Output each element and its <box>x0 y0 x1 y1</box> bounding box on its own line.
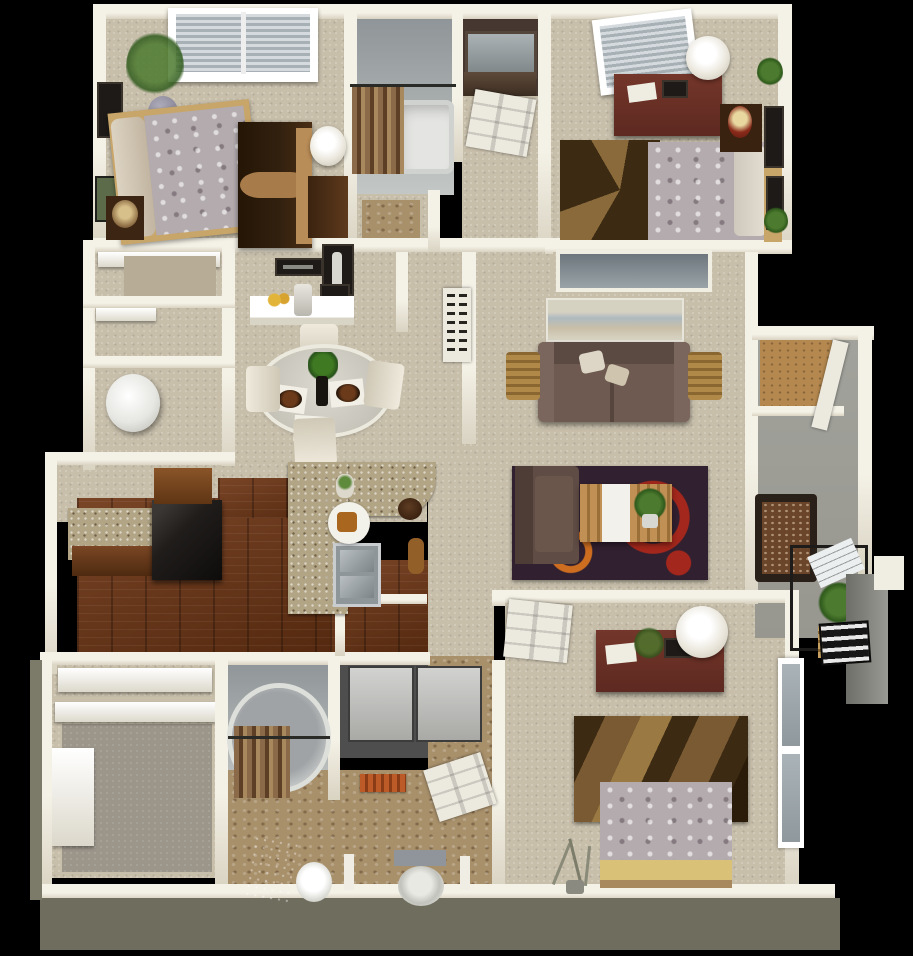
bedroom3-door <box>503 599 573 663</box>
wall-kitchen-bottom <box>45 652 430 665</box>
bedroom3-bed <box>600 782 732 864</box>
kitchen-plate-food <box>337 512 357 532</box>
bedroom3-window-pane-2 <box>782 754 800 842</box>
kitchen-canister <box>336 474 354 498</box>
bedroom1-window-mullion <box>241 12 246 74</box>
bedroom1-floor-lamp <box>310 126 346 166</box>
kitchen-sink-basin-1 <box>340 550 374 572</box>
kitchen-cabinet-upper <box>154 468 212 504</box>
kitchen-sink-basin-2 <box>340 576 374 598</box>
wall-closets-bottom <box>45 452 235 465</box>
pantry-louver-slats-right <box>459 294 467 356</box>
wall-balcony-right <box>858 326 872 574</box>
dining-chair-left <box>246 366 280 412</box>
bedroom1-basket-lamp <box>112 200 138 228</box>
walkin-shelf-top <box>55 702 215 722</box>
pantry-louver-door <box>443 288 471 362</box>
bedroom2-wall-art-1 <box>764 106 784 168</box>
wall-closets-left <box>83 240 95 470</box>
bedroom2-bed-pillows <box>734 146 766 236</box>
bedroom2-photo-frame <box>662 80 688 98</box>
bathroom2-pillar-2 <box>460 856 470 890</box>
wall-vanity-bed2 <box>538 4 551 252</box>
balcony-stairs <box>819 620 872 665</box>
wall-closet2-div <box>83 356 235 368</box>
balcony-stair-cap <box>874 556 904 590</box>
pantry-louver-slats-left <box>447 294 455 356</box>
bedroom1-plant <box>126 30 184 104</box>
living-sofa-arm-left <box>538 342 554 422</box>
bathroom2-pillar-1 <box>344 854 354 890</box>
closet1-runner <box>124 256 216 296</box>
dining-art-bottle <box>332 252 342 286</box>
bathroom2-sink <box>398 866 444 906</box>
living-alcove-window <box>560 254 708 288</box>
kitchen-fridge <box>152 500 222 580</box>
wall-bed3-left-a <box>492 590 505 606</box>
living-sofa <box>538 342 690 422</box>
bedroom3-window <box>778 658 804 848</box>
bedroom2-rug <box>560 140 660 240</box>
living-plant-pot <box>642 514 658 528</box>
wardrobe-door-2 <box>418 668 480 740</box>
bedroom3-plant-pot <box>566 880 584 894</box>
bedroom3-dresser-papers <box>605 642 637 664</box>
bathroom2-towel <box>360 774 406 792</box>
dining-console-vase <box>294 284 312 316</box>
bathroom2-curtain-rod <box>228 736 330 739</box>
bedroom2-wreath-2 <box>764 206 788 238</box>
living-armchair <box>515 466 579 564</box>
kitchen-bowl <box>398 498 422 520</box>
living-end-table-left <box>506 352 540 400</box>
living-sofa-back <box>538 342 690 364</box>
wall-closet1-div <box>83 296 235 308</box>
dining-wall-art-1 <box>275 258 323 276</box>
dining-art-text <box>283 265 313 269</box>
dining-console-bottles <box>266 286 290 314</box>
kitchen-cutting-board <box>408 538 424 574</box>
floor-plan-stage <box>0 0 913 956</box>
dining-center-vase <box>316 376 328 406</box>
water-heater <box>106 374 160 432</box>
dining-chair-right <box>363 360 405 411</box>
outer-face-left <box>30 660 42 900</box>
corridor-floor <box>428 460 494 656</box>
kitchen-sink <box>336 546 378 604</box>
bedroom3-footboard <box>600 880 732 888</box>
outer-face-bottom <box>40 898 840 950</box>
living-sofa-pillow-2 <box>604 363 630 387</box>
bathroom1-curtain-rod <box>350 84 456 87</box>
wall-entrycloset-right <box>428 190 440 252</box>
wall-kitchen-left <box>45 452 57 674</box>
bathroom2-mat <box>394 850 446 866</box>
living-end-table-right <box>688 352 722 400</box>
wall-bed3-left-b <box>492 660 505 890</box>
vanity-mirror <box>468 34 534 76</box>
wardrobe-door-1 <box>350 668 412 740</box>
wall-balcony-top <box>752 326 874 340</box>
wall-tubroom-right <box>328 652 340 800</box>
wall-bath2-left <box>215 652 228 888</box>
bathroom1-door <box>465 89 536 157</box>
closet2-shelf <box>96 308 156 321</box>
living-table-runner <box>602 484 630 542</box>
wall-closets-right <box>222 240 235 466</box>
kitchen-cabinet-base <box>72 546 162 576</box>
bedroom3-lamp <box>676 606 728 658</box>
walkin-shelf-left <box>52 748 94 846</box>
living-armchair-cushion <box>535 476 573 552</box>
dining-plate-right <box>336 384 360 402</box>
bedroom2-wreath-1 <box>757 56 783 90</box>
bedroom2-red-lamp <box>728 106 752 138</box>
bathroom1-shower-curtain <box>352 84 404 174</box>
living-armchair-back <box>515 466 533 564</box>
bedroom2-lamp <box>686 36 730 80</box>
bedroom3-dresser-plant <box>634 626 664 664</box>
bedroom1-desk <box>308 176 348 238</box>
wall-dining-right-upper <box>396 252 408 332</box>
dining-plate-left <box>278 390 302 408</box>
living-sofa-pillow-1 <box>578 350 606 375</box>
dining-chair-bottom <box>293 417 337 467</box>
living-painting <box>548 300 682 340</box>
bedroom3-window-pane-1 <box>782 664 800 746</box>
bathroom2-toilet <box>296 862 332 902</box>
linen-shelf <box>58 668 212 692</box>
